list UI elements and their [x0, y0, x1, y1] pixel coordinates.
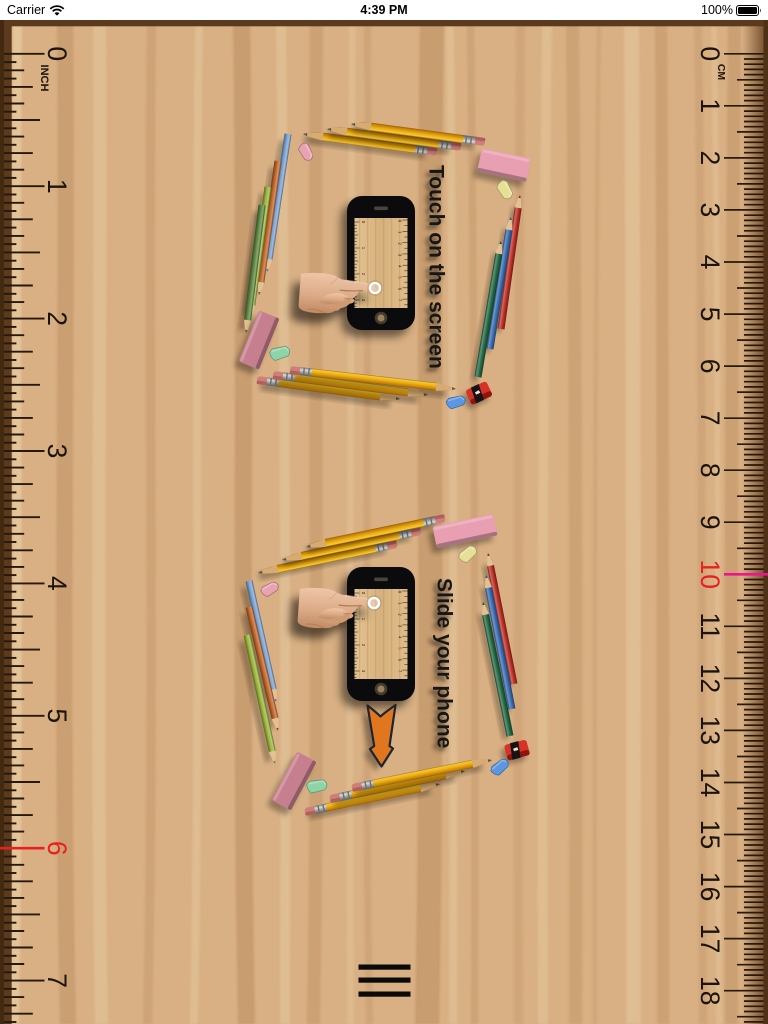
svg-text:3: 3	[42, 444, 72, 459]
svg-text:1: 1	[42, 179, 72, 194]
svg-text:2: 2	[695, 151, 725, 166]
svg-text:CM: CM	[715, 64, 727, 81]
svg-text:13: 13	[695, 716, 725, 745]
svg-text:10: 10	[695, 560, 725, 589]
svg-text:1: 1	[695, 98, 725, 113]
svg-text:2: 2	[42, 311, 72, 326]
svg-text:6: 6	[695, 359, 725, 374]
svg-text:12: 12	[695, 664, 725, 693]
svg-text:16: 16	[695, 872, 725, 901]
svg-text:7: 7	[695, 411, 725, 426]
svg-text:5: 5	[42, 708, 72, 723]
svg-text:17: 17	[695, 924, 725, 953]
svg-text:18: 18	[695, 976, 725, 1005]
svg-text:Touch on the screen: Touch on the screen	[425, 165, 448, 369]
svg-text:8: 8	[695, 463, 725, 478]
svg-text:9: 9	[695, 515, 725, 530]
svg-text:6: 6	[42, 841, 72, 856]
svg-text:14: 14	[695, 768, 725, 797]
svg-text:3: 3	[695, 203, 725, 218]
svg-text:4: 4	[695, 255, 725, 270]
svg-text:0: 0	[42, 46, 72, 61]
svg-text:11: 11	[695, 613, 725, 641]
svg-text:7: 7	[42, 973, 72, 988]
svg-text:INCH: INCH	[38, 65, 50, 92]
svg-text:Slide your phone: Slide your phone	[433, 578, 456, 748]
svg-text:5: 5	[695, 307, 725, 322]
svg-text:0: 0	[695, 46, 725, 61]
svg-text:4: 4	[42, 576, 72, 591]
svg-text:15: 15	[695, 820, 725, 849]
